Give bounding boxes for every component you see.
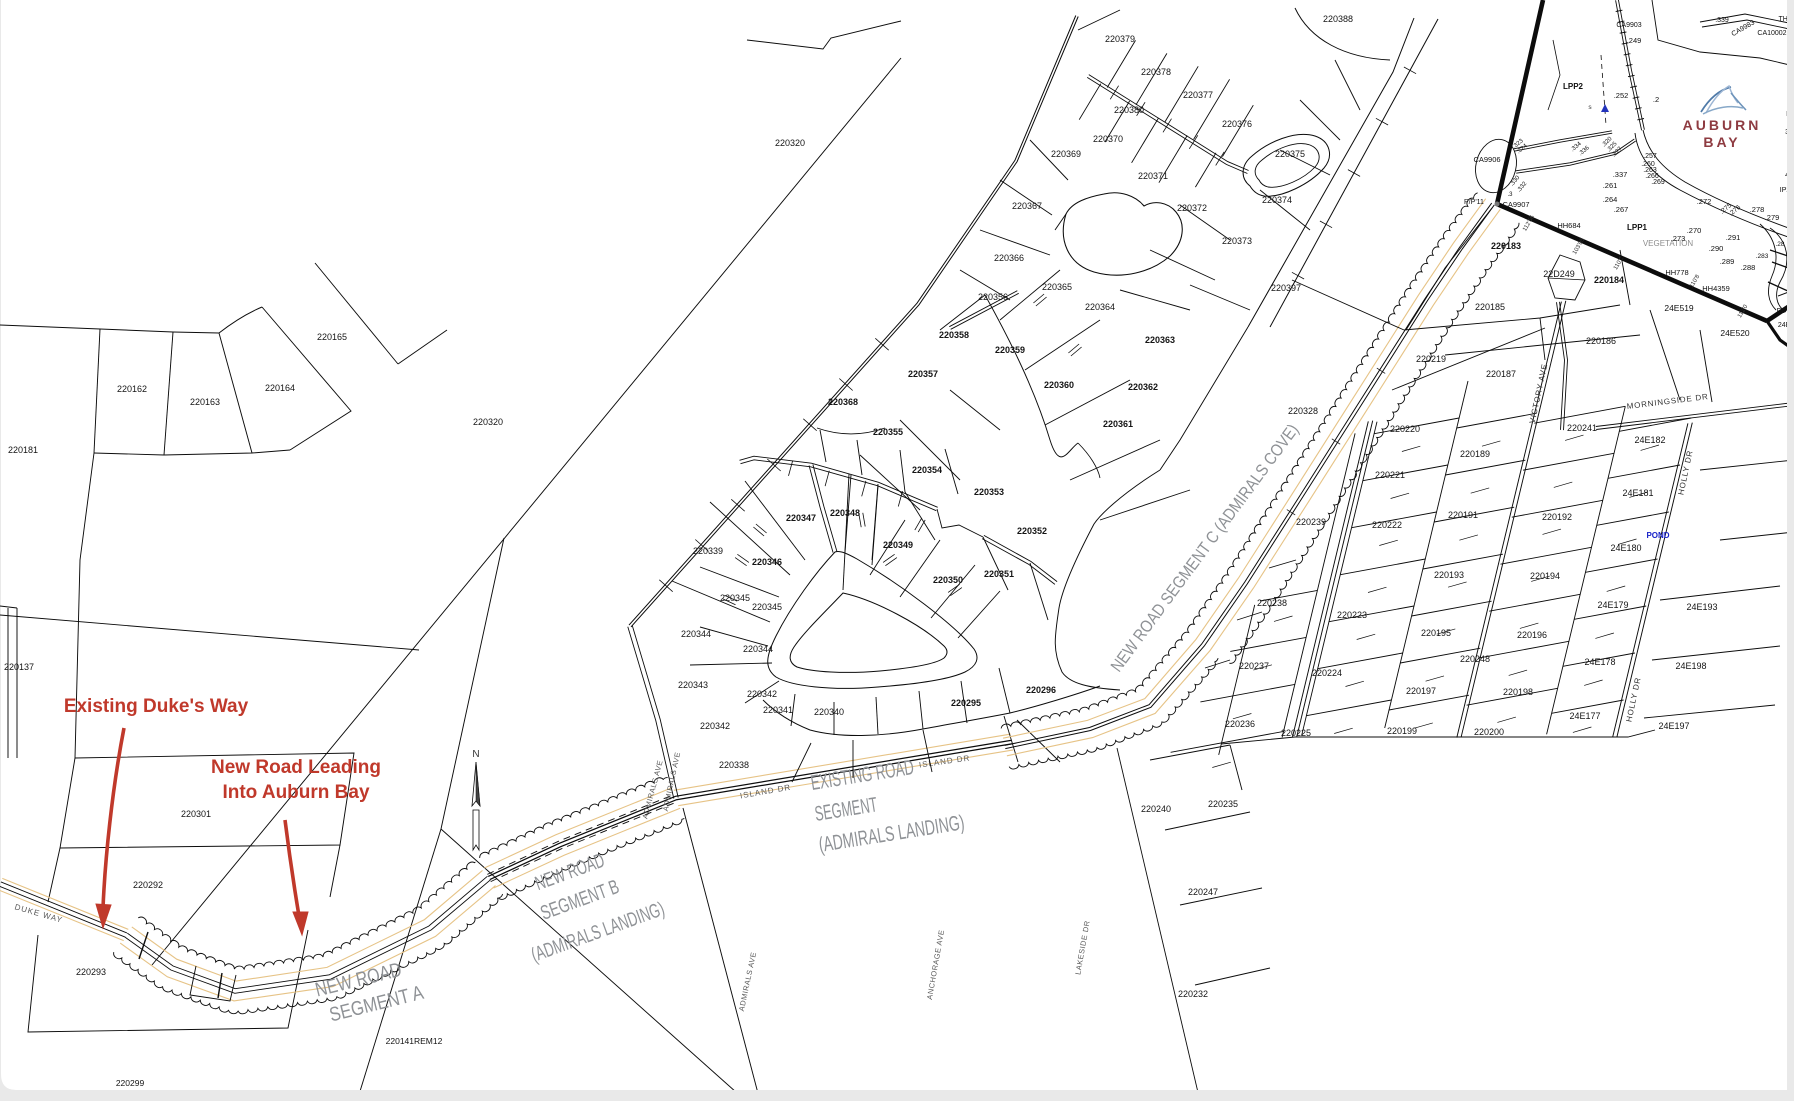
svg-text:220184: 220184 [1594, 275, 1624, 285]
svg-text:220356: 220356 [978, 292, 1008, 302]
svg-text:220346: 220346 [752, 557, 782, 567]
svg-text:220240: 220240 [1141, 804, 1171, 814]
svg-text:220183: 220183 [1491, 241, 1521, 251]
svg-text:24E177: 24E177 [1569, 711, 1600, 721]
svg-text:220241: 220241 [1567, 423, 1597, 433]
svg-text:220192: 220192 [1542, 512, 1572, 522]
svg-text:220340: 220340 [814, 707, 844, 717]
svg-text:220339: 220339 [693, 546, 723, 556]
svg-text:220239: 220239 [1296, 517, 1326, 527]
svg-text:220351: 220351 [984, 569, 1014, 579]
svg-text:220295: 220295 [951, 698, 981, 708]
svg-text:220350: 220350 [933, 575, 963, 585]
svg-text:New Road Leading: New Road Leading [211, 757, 381, 778]
svg-text:220248: 220248 [1460, 654, 1490, 664]
svg-text:220191: 220191 [1448, 510, 1478, 520]
svg-text:220247: 220247 [1188, 887, 1218, 897]
svg-text:220370: 220370 [1093, 134, 1123, 144]
svg-text:220369: 220369 [1051, 149, 1081, 159]
svg-text:24E520: 24E520 [1720, 328, 1750, 338]
svg-text:220388: 220388 [1323, 14, 1353, 24]
svg-text:.264: .264 [1603, 195, 1618, 204]
svg-text:220377: 220377 [1183, 90, 1213, 100]
svg-text:220341: 220341 [763, 705, 793, 715]
svg-text:220189: 220189 [1460, 449, 1490, 459]
svg-text:.252: .252 [1614, 91, 1629, 100]
svg-text:.270: .270 [1687, 226, 1702, 235]
svg-text:220219: 220219 [1416, 354, 1446, 364]
svg-text:220342: 220342 [747, 689, 777, 699]
svg-text:220345: 220345 [752, 602, 782, 612]
svg-text:.272: .272 [1697, 197, 1712, 206]
svg-text:220162: 220162 [117, 384, 147, 394]
svg-text:220196: 220196 [1517, 630, 1547, 640]
svg-text:220360: 220360 [1044, 380, 1074, 390]
svg-text:HH778: HH778 [1665, 268, 1688, 277]
svg-text:.267: .267 [1614, 205, 1629, 214]
svg-text:HH4359: HH4359 [1702, 284, 1730, 293]
svg-text:220185: 220185 [1475, 302, 1505, 312]
svg-text:220345: 220345 [720, 593, 750, 603]
svg-text:220344: 220344 [743, 644, 773, 654]
svg-text:220361: 220361 [1103, 419, 1133, 429]
svg-text:220195: 220195 [1421, 628, 1451, 638]
svg-text:220371: 220371 [1138, 171, 1168, 181]
svg-text:24E179: 24E179 [1597, 600, 1628, 610]
svg-text:.3: .3 [1507, 192, 1513, 198]
svg-text:24E193: 24E193 [1686, 602, 1717, 612]
svg-text:220164: 220164 [265, 383, 295, 393]
svg-text:220299: 220299 [116, 1078, 145, 1088]
svg-text:220359: 220359 [995, 345, 1025, 355]
svg-text:220353: 220353 [974, 487, 1004, 497]
svg-text:22D249: 22D249 [1543, 269, 1575, 279]
svg-text:24E181: 24E181 [1622, 488, 1653, 498]
svg-text:.291: .291 [1726, 233, 1741, 242]
svg-text:220301: 220301 [181, 809, 211, 819]
svg-text:24E198: 24E198 [1675, 661, 1706, 671]
svg-text:P/P'11: P/P'11 [1464, 199, 1484, 206]
svg-text:220220: 220220 [1390, 424, 1420, 434]
svg-text:220380: 220380 [1114, 105, 1144, 115]
svg-text:220379: 220379 [1105, 34, 1135, 44]
svg-text:220373: 220373 [1222, 236, 1252, 246]
svg-text:220358: 220358 [939, 330, 969, 340]
svg-text:220355: 220355 [873, 427, 903, 437]
svg-text:VEGETATION: VEGETATION [1643, 239, 1694, 248]
svg-text:220187: 220187 [1486, 369, 1516, 379]
svg-text:.2: .2 [1653, 95, 1659, 104]
svg-text:.337: .337 [1613, 170, 1628, 179]
svg-text:.257: .257 [1643, 153, 1657, 160]
svg-text:220225: 220225 [1281, 728, 1311, 738]
svg-text:220397: 220397 [1271, 283, 1301, 293]
svg-text:220235: 220235 [1208, 799, 1238, 809]
svg-text:220348: 220348 [830, 508, 860, 518]
svg-text:.288: .288 [1741, 263, 1756, 272]
svg-text:CA9907: CA9907 [1502, 200, 1529, 209]
svg-text:CA9906: CA9906 [1473, 155, 1500, 164]
svg-text:220344: 220344 [681, 629, 711, 639]
svg-text:220328: 220328 [1288, 406, 1318, 416]
svg-text:220349: 220349 [883, 540, 913, 550]
svg-text:LPP2: LPP2 [1563, 82, 1584, 91]
svg-text:220362: 220362 [1128, 382, 1158, 392]
svg-text:220338: 220338 [719, 760, 749, 770]
svg-text:220375: 220375 [1275, 149, 1305, 159]
svg-text:.261: .261 [1603, 181, 1618, 190]
svg-text:HH684: HH684 [1557, 221, 1580, 230]
svg-text:220222: 220222 [1372, 520, 1402, 530]
svg-text:220363: 220363 [1145, 335, 1175, 345]
svg-text:LPP1: LPP1 [1627, 223, 1648, 232]
svg-text:220367: 220367 [1012, 201, 1042, 211]
svg-text:220374: 220374 [1262, 195, 1292, 205]
svg-text:24E178: 24E178 [1584, 657, 1615, 667]
svg-text:F6: F6 [1777, 306, 1786, 315]
svg-text:220378: 220378 [1141, 67, 1171, 77]
svg-text:220357: 220357 [908, 369, 938, 379]
svg-text:220342: 220342 [700, 721, 730, 731]
svg-text:220347: 220347 [786, 513, 816, 523]
svg-text:220223: 220223 [1337, 610, 1367, 620]
svg-text:220193: 220193 [1434, 570, 1464, 580]
svg-text:.269: .269 [1651, 179, 1665, 186]
svg-text:220181: 220181 [8, 445, 38, 455]
svg-text:220372: 220372 [1177, 203, 1207, 213]
svg-text:220376: 220376 [1222, 119, 1252, 129]
svg-text:220221: 220221 [1375, 470, 1405, 480]
svg-text:.279: .279 [1765, 213, 1780, 222]
svg-text:220368: 220368 [828, 397, 858, 407]
svg-text:220200: 220200 [1474, 727, 1504, 737]
svg-text:220292: 220292 [133, 880, 163, 890]
svg-text:CA10002: CA10002 [1757, 30, 1786, 37]
svg-text:.339: .339 [1715, 17, 1729, 24]
svg-text:220236: 220236 [1225, 719, 1255, 729]
svg-text:220238: 220238 [1257, 598, 1287, 608]
svg-text:220165: 220165 [317, 332, 347, 342]
svg-text:220366: 220366 [994, 253, 1024, 263]
svg-text:Into Auburn Bay: Into Auburn Bay [222, 782, 369, 803]
svg-text:220320: 220320 [775, 138, 805, 148]
svg-text:220320: 220320 [473, 417, 503, 427]
svg-text:220194: 220194 [1530, 571, 1560, 581]
svg-text:220197: 220197 [1406, 686, 1436, 696]
svg-text:220296: 220296 [1026, 685, 1056, 695]
svg-text:POND: POND [1646, 531, 1669, 540]
svg-text:220364: 220364 [1085, 302, 1115, 312]
svg-text:BAY: BAY [1703, 134, 1740, 150]
svg-text:AUBURN: AUBURN [1683, 117, 1762, 133]
svg-text:.278: .278 [1750, 205, 1765, 214]
svg-text:N: N [472, 749, 479, 760]
svg-text:220198: 220198 [1503, 687, 1533, 697]
svg-text:CA9903: CA9903 [1616, 22, 1641, 29]
svg-text:24E182: 24E182 [1634, 435, 1665, 445]
svg-text:220354: 220354 [912, 465, 942, 475]
svg-text:24E197: 24E197 [1658, 721, 1689, 731]
svg-text:.290: .290 [1709, 244, 1724, 253]
svg-text:220232: 220232 [1178, 989, 1208, 999]
svg-text:.249: .249 [1627, 36, 1642, 45]
svg-text:220141REM12: 220141REM12 [386, 1036, 443, 1046]
svg-text:.273: .273 [1671, 234, 1686, 243]
svg-text:220199: 220199 [1387, 726, 1417, 736]
svg-text:.28: .28 [1775, 241, 1784, 248]
svg-text:220186: 220186 [1586, 336, 1616, 346]
svg-text:220352: 220352 [1017, 526, 1047, 536]
svg-text:.283: .283 [1756, 253, 1769, 260]
svg-text:Existing Duke's Way: Existing Duke's Way [64, 696, 249, 717]
svg-text:220343: 220343 [678, 680, 708, 690]
svg-text:220137: 220137 [4, 662, 34, 672]
svg-text:.289: .289 [1720, 257, 1735, 266]
svg-text:220293: 220293 [76, 967, 106, 977]
svg-text:24E180: 24E180 [1610, 543, 1641, 553]
svg-text:24E519: 24E519 [1664, 303, 1694, 313]
svg-text:220224: 220224 [1312, 668, 1342, 678]
svg-text:220163: 220163 [190, 397, 220, 407]
svg-text:220237: 220237 [1239, 661, 1269, 671]
svg-text:220365: 220365 [1042, 282, 1072, 292]
